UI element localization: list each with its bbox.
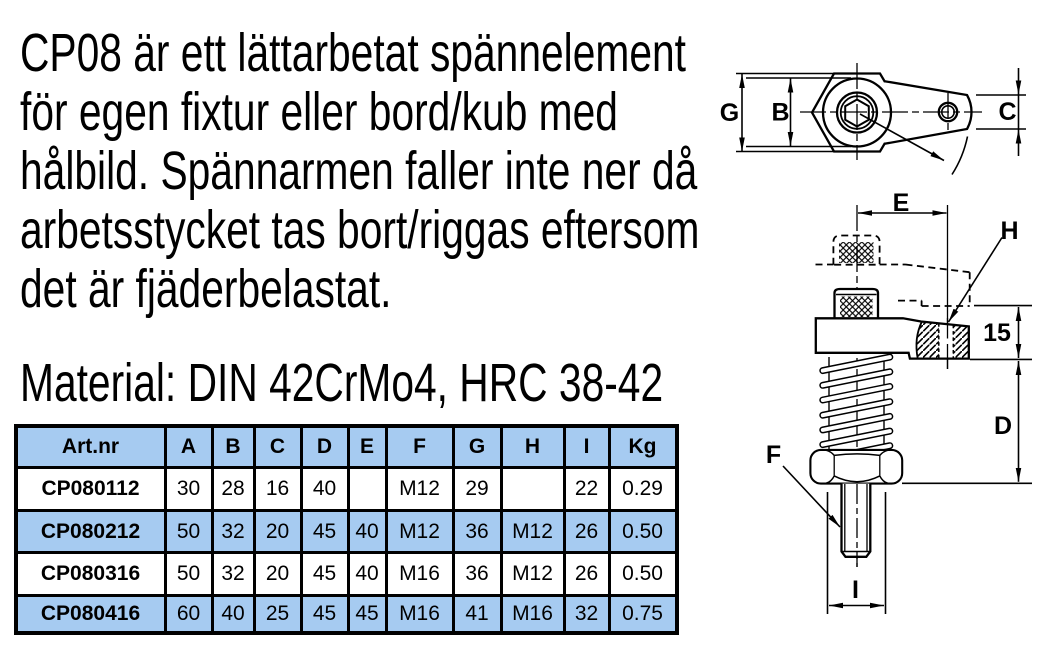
- svg-text:E: E: [893, 189, 910, 217]
- svg-text:15: 15: [983, 319, 1011, 347]
- svg-text:D: D: [994, 412, 1012, 440]
- svg-text:C: C: [998, 98, 1016, 126]
- svg-text:G: G: [720, 99, 739, 127]
- svg-text:B: B: [771, 99, 789, 127]
- svg-text:F: F: [766, 441, 781, 469]
- svg-text:H: H: [1000, 217, 1018, 245]
- svg-text:I: I: [852, 576, 859, 604]
